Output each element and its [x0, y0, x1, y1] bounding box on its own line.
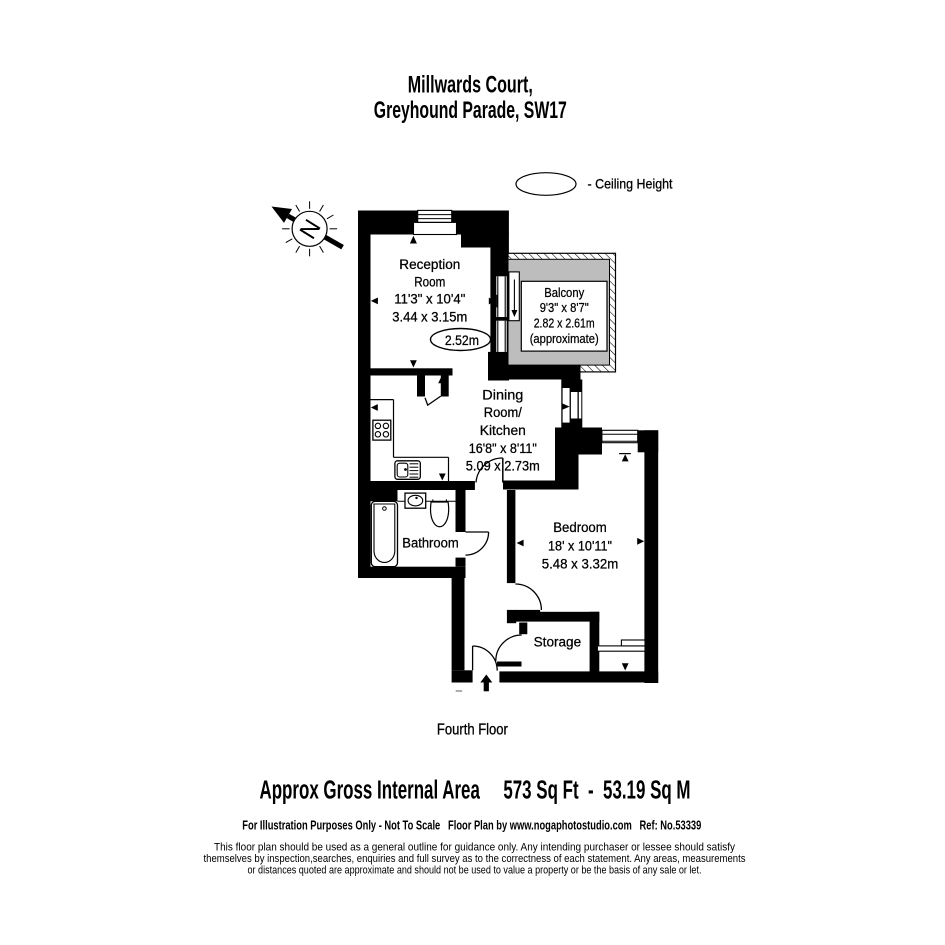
svg-text:This floor plan should be used: This floor plan should be used as a gene…: [214, 842, 735, 854]
svg-text:Bedroom: Bedroom: [553, 520, 607, 536]
svg-text:Balcony: Balcony: [544, 285, 584, 300]
svg-text:Kitchen: Kitchen: [480, 423, 526, 439]
svg-text:Room/: Room/: [484, 405, 522, 421]
svg-text:18' x 10'11": 18' x 10'11": [548, 538, 612, 554]
svg-text:Dining: Dining: [482, 387, 523, 403]
svg-text:11'3" x 10'4": 11'3" x 10'4": [394, 291, 465, 307]
svg-text:or distances quoted are approx: or distances quoted are approximate and …: [248, 865, 702, 877]
svg-text:themselves by inspection,searc: themselves by inspection,searches, enqui…: [204, 853, 746, 865]
svg-text:Greyhound Parade, SW17: Greyhound Parade, SW17: [374, 97, 567, 124]
svg-text:Storage: Storage: [534, 635, 582, 651]
svg-text:Bathroom: Bathroom: [402, 535, 458, 551]
svg-text:Millwards Court,: Millwards Court,: [408, 72, 533, 99]
svg-text:3.44 x 3.15m: 3.44 x 3.15m: [392, 309, 467, 325]
svg-text:- Ceiling Height: - Ceiling Height: [588, 175, 673, 191]
svg-text:2.52m: 2.52m: [445, 333, 479, 349]
svg-text:5.48 x 3.32m: 5.48 x 3.32m: [542, 557, 619, 573]
svg-text:Reception: Reception: [399, 257, 460, 273]
svg-text:(approximate): (approximate): [530, 331, 599, 346]
svg-text:Approx Gross Internal Area: Approx Gross Internal Area 573 Sq Ft - 5…: [260, 777, 691, 805]
svg-text:Room: Room: [414, 275, 445, 291]
svg-text:2.82 x 2.61m: 2.82 x 2.61m: [534, 316, 595, 331]
svg-text:Fourth Floor: Fourth Floor: [437, 722, 508, 739]
svg-text:5.09 x 2.73m: 5.09 x 2.73m: [466, 459, 540, 475]
svg-text:16'8" x 8'11": 16'8" x 8'11": [469, 441, 537, 457]
svg-text:For Illustration Purposes Only: For Illustration Purposes Only - Not To …: [242, 818, 701, 833]
svg-text:9'3" x 8'7": 9'3" x 8'7": [540, 300, 589, 315]
